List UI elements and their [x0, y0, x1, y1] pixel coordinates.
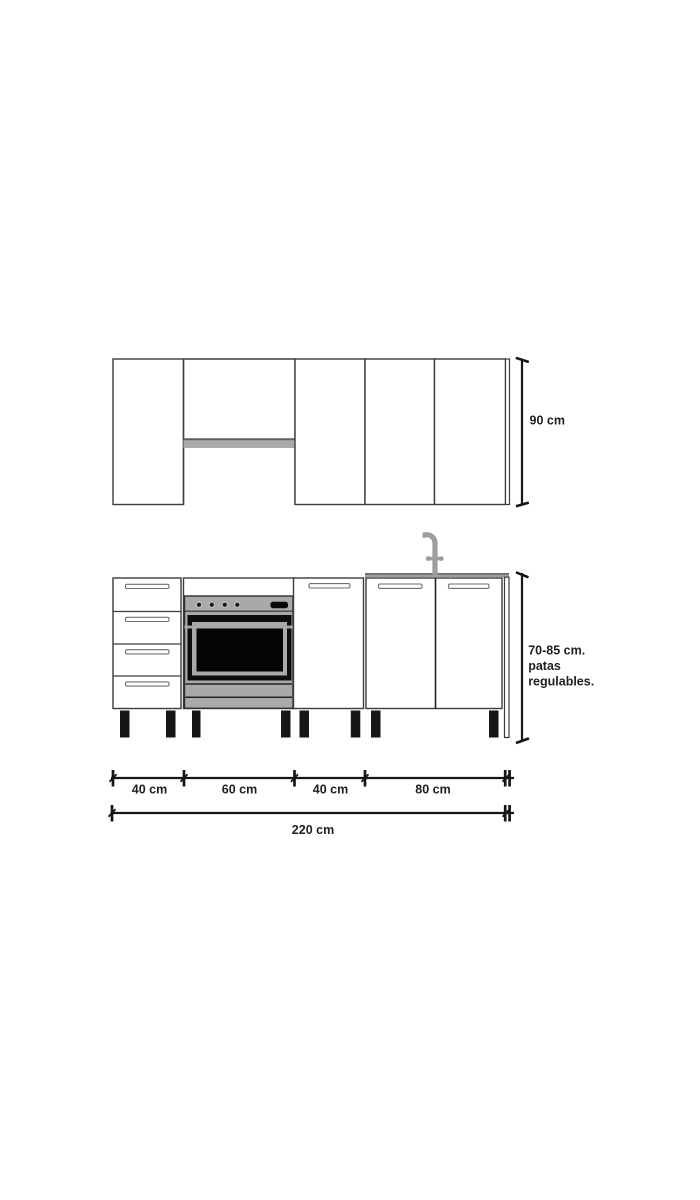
svg-text:patas: patas	[528, 659, 561, 673]
svg-text:220 cm: 220 cm	[292, 823, 334, 837]
svg-text:40 cm: 40 cm	[132, 783, 167, 797]
svg-text:80 cm: 80 cm	[415, 783, 450, 797]
svg-text:60 cm: 60 cm	[222, 783, 257, 797]
svg-text:70-85 cm.: 70-85 cm.	[528, 644, 585, 658]
svg-text:40 cm: 40 cm	[313, 783, 348, 797]
svg-text:90 cm: 90 cm	[530, 414, 565, 428]
svg-text:regulables.: regulables.	[528, 674, 594, 688]
